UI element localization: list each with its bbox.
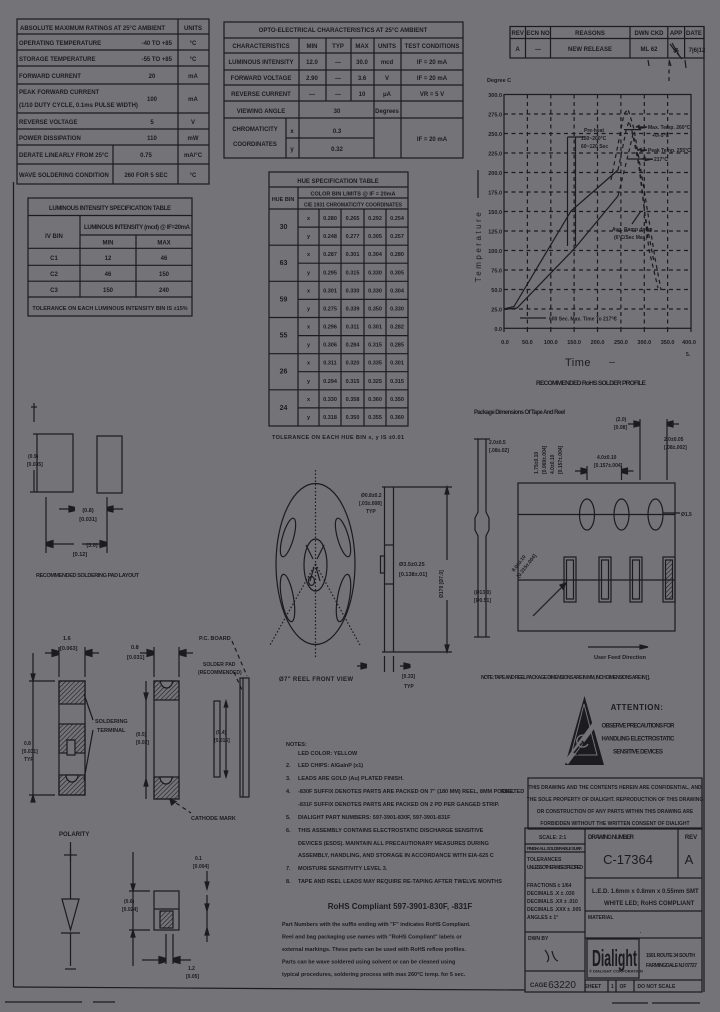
svg-text:-830F SUFFIX DENOTES PARTS ARE: -830F SUFFIX DENOTES PARTS ARE PACKED ON… (298, 789, 524, 795)
svg-text:300.0: 300.0 (488, 93, 502, 99)
svg-text:TEST CONDITIONS: TEST CONDITIONS (405, 44, 460, 50)
svg-text:DWN CKD: DWN CKD (635, 31, 665, 37)
svg-text:0.330: 0.330 (368, 270, 382, 276)
svg-text:63220: 63220 (548, 980, 576, 991)
svg-text:[0.12]: [0.12] (73, 552, 88, 558)
svg-text:C1: C1 (50, 256, 58, 262)
svg-text:LUMINOUS INTENSITY (mcd) @ IF=: LUMINOUS INTENSITY (mcd) @ IF=20mA (84, 225, 191, 231)
svg-text:0.287: 0.287 (323, 252, 337, 258)
svg-text:TOLERANCES: TOLERANCES (527, 857, 562, 863)
svg-text:[0.031]: [0.031] (79, 517, 97, 523)
svg-text:0.8: 0.8 (24, 741, 31, 747)
svg-text:7.: 7. (286, 866, 291, 872)
svg-text:3.6: 3.6 (358, 76, 367, 82)
svg-text:250.0: 250.0 (614, 340, 628, 346)
svg-text:POWER DISSIPATION: POWER DISSIPATION (19, 136, 81, 142)
svg-text:(0.5): (0.5) (136, 732, 147, 738)
svg-text:Degree C: Degree C (487, 78, 511, 84)
svg-text:0.248: 0.248 (323, 234, 337, 240)
svg-text:VIEWING ANGLE: VIEWING ANGLE (237, 109, 285, 115)
svg-text:CAGE: CAGE (530, 983, 547, 989)
svg-text:DRAWING NUMBER: DRAWING NUMBER (588, 835, 635, 841)
svg-text:RECOMMENDED SOLDERING PAD LAYO: RECOMMENDED SOLDERING PAD LAYOUT (36, 573, 140, 579)
svg-text:SOLDER PAD: SOLDER PAD (203, 662, 236, 668)
svg-text:10: 10 (359, 92, 366, 98)
svg-text:275.0: 275.0 (488, 113, 502, 119)
svg-text:POLARITY: POLARITY (59, 832, 89, 838)
svg-text:0.284: 0.284 (346, 343, 361, 349)
svg-text:0.280: 0.280 (390, 252, 404, 258)
svg-text:Reel and bag packaging use nam: Reel and bag packaging use names with "R… (282, 935, 463, 941)
svg-text:A: A (685, 852, 694, 867)
svg-text:°C: °C (190, 173, 197, 179)
svg-text:ANGLES ± 1°: ANGLES ± 1° (527, 915, 558, 921)
svg-text:mW: mW (188, 136, 199, 142)
svg-text:ATTENTION:: ATTENTION: (611, 703, 664, 712)
svg-text:(0.8): (0.8) (82, 508, 93, 514)
svg-text:63: 63 (280, 260, 288, 267)
svg-text:Part Numbers with the suffix e: Part Numbers with the suffix ending with… (282, 922, 471, 928)
svg-text:0.257: 0.257 (390, 234, 404, 240)
svg-text:260 FOR 5 SEC: 260 FOR 5 SEC (124, 173, 168, 179)
svg-text:[Ø0.51]: [Ø0.51] (474, 598, 491, 604)
svg-text:SOLDERING: SOLDERING (95, 719, 128, 725)
svg-text:[0.035]: [0.035] (27, 462, 43, 468)
svg-text:0.318: 0.318 (323, 415, 337, 421)
svg-text:ABSOLUTE MAXIMUM RATINGS AT 25: ABSOLUTE MAXIMUM RATINGS AT 25°C AMBIENT (20, 26, 165, 32)
svg-text:[0.02]: [0.02] (136, 740, 149, 746)
svg-text:UNITS: UNITS (184, 26, 202, 32)
svg-text:0.1: 0.1 (195, 856, 202, 862)
svg-text:2.0±0.5: 2.0±0.5 (489, 440, 506, 446)
svg-text:600 Sec. Max. Time To 217°C: 600 Sec. Max. Time To 217°C (549, 317, 617, 323)
svg-text:(0.4): (0.4) (216, 730, 227, 736)
svg-text:—: — (335, 76, 341, 82)
svg-text:COORDINATES: COORDINATES (233, 142, 277, 148)
svg-text:300.0: 300.0 (637, 340, 651, 346)
svg-text:IF = 20 mA: IF = 20 mA (417, 76, 448, 82)
svg-text:Temperature: Temperature (474, 210, 483, 282)
svg-text:MIN: MIN (307, 44, 318, 50)
svg-text:® DIALIGHT CORPORATION: ® DIALIGHT CORPORATION (589, 969, 643, 974)
svg-text:0.330: 0.330 (368, 288, 382, 294)
svg-text:MATERIAL: MATERIAL (588, 915, 613, 921)
svg-text:—: — (535, 47, 541, 53)
svg-text:0.325: 0.325 (368, 379, 382, 385)
svg-text:DEVICES (ESDS). MAINTAIN ALL P: DEVICES (ESDS). MAINTAIN ALL PRECAUTIONA… (298, 841, 489, 847)
svg-text:150~200°C: 150~200°C (581, 136, 607, 142)
svg-text:DO NOT SCALE: DO NOT SCALE (638, 984, 676, 990)
svg-text:-831F SUFFIX DENOTES PARTS ARE: -831F SUFFIX DENOTES PARTS ARE PACKED ON… (298, 802, 500, 808)
svg-text:0.292: 0.292 (368, 216, 382, 222)
svg-text:—: — (335, 92, 341, 98)
svg-text:5.: 5. (286, 815, 291, 821)
svg-text:REVERSE CURRENT: REVERSE CURRENT (231, 92, 291, 98)
svg-text:0.301: 0.301 (346, 252, 360, 258)
svg-text:UNLESS OTHERWISE SPECIFIED: UNLESS OTHERWISE SPECIFIED (527, 865, 583, 871)
svg-text:4.0±0.10: 4.0±0.10 (597, 455, 617, 461)
svg-text:0.75: 0.75 (140, 153, 152, 159)
svg-text:°C: °C (190, 57, 197, 63)
svg-text:200.0: 200.0 (591, 340, 605, 346)
svg-text:[0.33]: [0.33] (402, 674, 415, 680)
svg-text:46: 46 (105, 272, 112, 278)
svg-text:mA: mA (188, 97, 198, 103)
svg-text:CHROMATICITY: CHROMATICITY (232, 127, 278, 133)
svg-text:Ø7" REEL FRONT VIEW: Ø7" REEL FRONT VIEW (279, 677, 353, 683)
svg-text:STORAGE TEMPERATURE: STORAGE TEMPERATURE (19, 57, 95, 63)
svg-text:(0.9): (0.9) (28, 454, 39, 460)
svg-text:Time: Time (565, 357, 591, 369)
svg-text:IF = 20 mA: IF = 20 mA (417, 137, 448, 143)
svg-text:350.0: 350.0 (661, 340, 675, 346)
svg-text:0.275: 0.275 (323, 307, 337, 313)
svg-text:20: 20 (149, 74, 156, 80)
svg-text:[0.031]: [0.031] (22, 749, 38, 755)
svg-text:(6°C/Sec Max): (6°C/Sec Max) (614, 235, 647, 241)
svg-text:46: 46 (161, 256, 168, 262)
svg-text:—: — (309, 92, 315, 98)
svg-text:TYP: TYP (404, 684, 414, 690)
svg-text:CATHODE MARK: CATHODE MARK (191, 816, 236, 822)
svg-text:V: V (385, 76, 389, 82)
svg-text:DWN BY: DWN BY (528, 936, 549, 942)
svg-text:0.8: 0.8 (131, 645, 139, 651)
svg-text:[0.08]: [0.08] (614, 425, 627, 431)
svg-text:0.304: 0.304 (390, 288, 405, 294)
svg-text:0.282: 0.282 (390, 325, 404, 331)
svg-text:SCALE: 2:1: SCALE: 2:1 (539, 835, 566, 841)
svg-text:8.: 8. (286, 879, 291, 885)
svg-text:59: 59 (280, 296, 288, 303)
svg-text:5.: 5. (686, 352, 691, 358)
svg-text:60~120 Sec: 60~120 Sec (581, 144, 608, 150)
svg-text:FARMINGDALE NJ 07727: FARMINGDALE NJ 07727 (646, 963, 697, 969)
svg-text:LUMINOUS INTENSITY: LUMINOUS INTENSITY (228, 60, 293, 66)
svg-text:0.3: 0.3 (333, 129, 342, 135)
svg-text:2.: 2. (286, 763, 291, 769)
svg-text:110: 110 (147, 136, 157, 142)
svg-text:TAPE AND REEL LEADS MAY REQUIR: TAPE AND REEL LEADS MAY REQUIRE RE-TAPIN… (298, 879, 502, 885)
svg-text:0.350: 0.350 (368, 307, 382, 313)
svg-text:•: • (614, 316, 616, 322)
svg-text:Pre-heat: Pre-heat (584, 128, 604, 134)
svg-text:0.285: 0.285 (390, 343, 404, 349)
svg-text:0.330: 0.330 (346, 288, 360, 294)
svg-text:NEW RELEASE: NEW RELEASE (568, 47, 612, 53)
svg-text:REASONS: REASONS (575, 31, 605, 37)
svg-text:12: 12 (105, 256, 112, 262)
svg-text:HANDLING ELECTROSTATIC: HANDLING ELECTROSTATIC (602, 737, 676, 743)
svg-text:WHITE LED; RoHS COMPLIANT: WHITE LED; RoHS COMPLIANT (604, 901, 695, 907)
svg-text:THIS ASSEMBLY CONTAINS ELECTRO: THIS ASSEMBLY CONTAINS ELECTROSTATIC DIS… (298, 828, 484, 834)
svg-text:0.350: 0.350 (390, 397, 404, 403)
svg-text:1.6: 1.6 (63, 636, 71, 642)
svg-text:2.0±0.05: 2.0±0.05 (664, 437, 684, 443)
svg-text:REV: REV (685, 835, 697, 841)
svg-text:WAVE SOLDERING CONDITION: WAVE SOLDERING CONDITION (19, 173, 109, 179)
svg-text:30: 30 (280, 224, 288, 231)
svg-text:SHEET: SHEET (585, 984, 602, 990)
svg-text:REV: REV (512, 31, 524, 37)
svg-text:30.0: 30.0 (356, 60, 368, 66)
svg-text:4.0±0.10: 4.0±0.10 (550, 454, 556, 474)
svg-text:HUE SPECIFICATION TABLE: HUE SPECIFICATION TABLE (297, 179, 378, 185)
svg-text:Dialight: Dialight (592, 945, 637, 971)
svg-text:0.294: 0.294 (323, 379, 338, 385)
svg-text:DERATE LINEARLY FROM 25°C: DERATE LINEARLY FROM 25°C (19, 153, 109, 159)
svg-text:[0.157±.004]: [0.157±.004] (558, 445, 564, 474)
svg-text:NOTE: TAPE AND REEL PACKAGE DI: NOTE: TAPE AND REEL PACKAGE DIMENSIONS A… (481, 675, 651, 681)
svg-text:FORWARD VOLTAGE: FORWARD VOLTAGE (231, 76, 292, 82)
svg-text:0.0: 0.0 (501, 340, 509, 346)
svg-text:L.E.D. 1.6mm x 0.8mm x 0.55mm: L.E.D. 1.6mm x 0.8mm x 0.55mm SMT (592, 889, 699, 895)
svg-text:LED CHIPS: AlGaInP (x1): LED CHIPS: AlGaInP (x1) (298, 763, 363, 769)
svg-text:DECIMALS .XX ± .010: DECIMALS .XX ± .010 (527, 899, 578, 905)
svg-text:0.254: 0.254 (390, 216, 405, 222)
svg-text:V: V (191, 120, 195, 126)
svg-text:OR CONSTRUCTION OF ANY PARTS W: OR CONSTRUCTION OF ANY PARTS WITHIN THIS… (537, 809, 694, 815)
svg-text:ECN NO: ECN NO (526, 31, 550, 37)
svg-text:Ø1.5: Ø1.5 (681, 512, 692, 518)
svg-text:—: — (335, 60, 341, 66)
svg-text:24: 24 (280, 405, 288, 412)
svg-text:+0/-5°C: +0/-5°C (652, 133, 670, 139)
svg-text:[0.024]: [0.024] (122, 907, 138, 913)
svg-text:75.0: 75.0 (491, 269, 502, 275)
svg-text:RoHS Compliant 597-3901-830F,: RoHS Compliant 597-3901-830F, -831F (328, 902, 473, 911)
svg-text:150: 150 (103, 288, 114, 294)
svg-text:[0.05]: [0.05] (186, 974, 199, 980)
svg-text:Avg. Ramp down: Avg. Ramp down (612, 227, 652, 233)
svg-text:26: 26 (280, 369, 288, 376)
svg-text:225.0: 225.0 (488, 152, 502, 158)
svg-text:CIE 1931 CHROMATICITY COORDINA: CIE 1931 CHROMATICITY COORDINATES (304, 203, 403, 209)
svg-text:LUMINOUS INTENSITY SPECIFICATI: LUMINOUS INTENSITY SPECIFICATION TABLE (49, 206, 171, 212)
svg-text:200.0: 200.0 (488, 171, 502, 177)
svg-text:1.2: 1.2 (188, 966, 195, 972)
svg-text:Degrees: Degrees (375, 109, 399, 115)
svg-text:mA/°C: mA/°C (184, 153, 203, 159)
svg-text:3.: 3. (286, 776, 291, 782)
svg-text:C2: C2 (50, 272, 58, 278)
svg-text:OBSERVE PRECAUTIONS FOR: OBSERVE PRECAUTIONS FOR (602, 724, 676, 730)
svg-text:MAX: MAX (355, 44, 368, 50)
svg-text:0.0: 0.0 (494, 327, 502, 333)
svg-text:6.: 6. (286, 828, 291, 834)
svg-text:[0.069±.004]: [0.069±.004] (542, 445, 548, 474)
svg-text:ASSEMBLY, HANDLING, AND STORAG: ASSEMBLY, HANDLING, AND STORAGE IN ACCOR… (298, 853, 494, 859)
svg-text:[0.004]: [0.004] (193, 864, 209, 870)
svg-text:150.0: 150.0 (567, 340, 581, 346)
svg-text:[0.138±.01]: [0.138±.01] (399, 572, 427, 578)
svg-text:RECOMMENDED RoHS SOLDER PROFIL: RECOMMENDED RoHS SOLDER PROFILE (536, 380, 647, 387)
svg-text:DECIMALS .X ± .030: DECIMALS .X ± .030 (527, 891, 575, 897)
svg-text:Ø0.8±0.2: Ø0.8±0.2 (361, 493, 382, 499)
svg-text:DIALIGHT PART NUMBERS: 597-390: DIALIGHT PART NUMBERS: 597-3901-830F, 59… (298, 815, 451, 821)
svg-text:0.360: 0.360 (390, 415, 404, 421)
svg-text:0.305: 0.305 (368, 234, 382, 240)
svg-text:CHARACTERISTICS: CHARACTERISTICS (232, 44, 289, 50)
svg-text:TOLERANCE ON EACH HUE BIN x, y: TOLERANCE ON EACH HUE BIN x, y IS ±0.01 (272, 435, 404, 441)
svg-text:FORWARD CURRENT: FORWARD CURRENT (19, 74, 81, 80)
svg-text:1501 ROUTE 34 SOUTH: 1501 ROUTE 34 SOUTH (646, 953, 695, 959)
svg-text:SENSITIVE DEVICES: SENSITIVE DEVICES (613, 750, 663, 756)
svg-text:Package Dimensions Of Tape And: Package Dimensions Of Tape And Reel (474, 410, 565, 416)
svg-text:DATE: DATE (686, 31, 702, 37)
svg-text:[0.031]: [0.031] (127, 655, 145, 661)
svg-text:UNITS: UNITS (378, 44, 396, 50)
svg-text:(Ø13.0): (Ø13.0) (474, 590, 491, 596)
svg-text:MAX: MAX (157, 241, 170, 247)
svg-text:0.301: 0.301 (368, 325, 382, 331)
svg-text:TERMINAL: TERMINAL (97, 728, 126, 734)
svg-text:MIN: MIN (103, 241, 114, 247)
svg-text:(2.0): (2.0) (616, 417, 627, 423)
svg-text:0.350: 0.350 (346, 415, 360, 421)
svg-text:IV BIN: IV BIN (45, 234, 63, 240)
svg-text:Peak Temp. 255°C: Peak Temp. 255°C (648, 148, 691, 154)
svg-text:Parts can be wave soldered usi: Parts can be wave soldered using solvent… (282, 960, 455, 966)
svg-text:0.301: 0.301 (323, 288, 337, 294)
svg-text:mcd: mcd (381, 60, 394, 66)
svg-text:LED COLOR: YELLOW: LED COLOR: YELLOW (298, 751, 358, 757)
svg-text:0.277: 0.277 (346, 234, 360, 240)
svg-text:LEADS ARE GOLD (Au) PLATED FIN: LEADS ARE GOLD (Au) PLATED FINISH. (298, 776, 404, 782)
svg-text:COLOR BIN LIMITS @ IF = 20mA: COLOR BIN LIMITS @ IF = 20mA (311, 192, 396, 198)
svg-text:[.08±.02]: [.08±.02] (489, 448, 509, 454)
svg-text:[.08±.002]: [.08±.002] (664, 445, 687, 451)
svg-text:50.0: 50.0 (522, 340, 533, 346)
svg-text:8.4: 8.4 (404, 664, 411, 670)
svg-text:(0.6): (0.6) (124, 899, 135, 905)
svg-text:(3.0): (3.0) (86, 543, 97, 549)
svg-text:50.0: 50.0 (491, 288, 502, 294)
svg-text:FINISH: ALL SOLDERABLE SURF.: FINISH: ALL SOLDERABLE SURF. (527, 846, 582, 851)
svg-text:0.280: 0.280 (323, 216, 337, 222)
svg-text:0.295: 0.295 (323, 270, 337, 276)
svg-text:0.330: 0.330 (390, 307, 404, 313)
svg-text:[0.157±.004]: [0.157±.004] (594, 463, 623, 469)
svg-text:User Feed Direction: User Feed Direction (594, 655, 647, 661)
svg-text:0.315: 0.315 (346, 270, 360, 276)
svg-text:30: 30 (334, 109, 341, 115)
svg-text:175.0: 175.0 (488, 191, 502, 197)
svg-text:APP: APP (670, 31, 682, 37)
svg-text:0.311: 0.311 (323, 361, 336, 367)
svg-text:0.355: 0.355 (368, 415, 382, 421)
svg-text:REVERSE VOLTAGE: REVERSE VOLTAGE (19, 120, 77, 126)
svg-text:VR = 5 V: VR = 5 V (420, 92, 444, 98)
svg-text:400.0: 400.0 (682, 340, 696, 346)
svg-text:0.265: 0.265 (346, 216, 360, 222)
svg-text:[.03±.008]: [.03±.008] (359, 501, 382, 507)
svg-text:-55 TO +85: -55 TO +85 (142, 57, 173, 63)
svg-text:[0.016]: [0.016] (214, 738, 230, 744)
svg-text:MOISTURE SENSITIVITY LEVEL 3.: MOISTURE SENSITIVITY LEVEL 3. (298, 866, 388, 872)
svg-text:-40 TO +85: -40 TO +85 (142, 41, 173, 47)
svg-text:0.358: 0.358 (346, 397, 360, 403)
svg-text:1.75±0.10: 1.75±0.10 (534, 452, 540, 474)
svg-text:DECIMALS .XXX ± .005: DECIMALS .XXX ± .005 (527, 907, 581, 913)
svg-text:240: 240 (159, 288, 170, 294)
svg-text:THE SOLE PROPERTY OF DIALIGHT.: THE SOLE PROPERTY OF DIALIGHT. REPRODUCT… (527, 797, 704, 803)
svg-text:C-17364: C-17364 (603, 852, 653, 867)
svg-text:PEAK FORWARD CURRENT: PEAK FORWARD CURRENT (19, 90, 100, 96)
svg-text:0.315: 0.315 (390, 379, 404, 385)
svg-text:0.330: 0.330 (323, 397, 337, 403)
svg-text:0.335: 0.335 (368, 361, 382, 367)
svg-text:0.305: 0.305 (390, 270, 404, 276)
svg-text:[0.063]: [0.063] (60, 646, 78, 652)
svg-text:0.311: 0.311 (346, 325, 359, 331)
svg-text:0.32: 0.32 (331, 147, 343, 153)
svg-text:OF: OF (620, 984, 627, 990)
svg-text:OPTO-ELECTRICAL CHARACTERISTIC: OPTO-ELECTRICAL CHARACTERISTICS AT 25°C … (259, 28, 428, 34)
svg-text:250.0: 250.0 (488, 132, 502, 138)
svg-text:FRACTIONS ± 1/64: FRACTIONS ± 1/64 (527, 883, 572, 889)
svg-text:TYP: TYP (366, 509, 376, 515)
svg-text:Ø3.5±0.25: Ø3.5±0.25 (399, 562, 425, 568)
svg-text:100.0: 100.0 (488, 249, 502, 255)
svg-text:0.320: 0.320 (346, 361, 360, 367)
svg-text:100: 100 (147, 97, 158, 103)
svg-text:A: A (516, 47, 521, 53)
svg-text:150: 150 (159, 272, 170, 278)
svg-text:(1/10 DUTY CYCLE, 0.1ms PULSE: (1/10 DUTY CYCLE, 0.1ms PULSE WIDTH) (19, 103, 138, 109)
svg-text:C3: C3 (50, 288, 58, 294)
svg-text:OPERATING TEMPERATURE: OPERATING TEMPERATURE (19, 41, 101, 47)
svg-text:mA: mA (188, 74, 198, 80)
svg-text:THIS DRAWING AND THE CONTENTS: THIS DRAWING AND THE CONTENTS HEREIN ARE… (528, 785, 702, 791)
svg-text:—: — (609, 360, 615, 366)
svg-text:0.360: 0.360 (368, 397, 382, 403)
svg-text:external markings. These parts: external markings. These parts can be us… (282, 947, 466, 953)
svg-text:FORBIDDEN WITHOUT THE WRITTEN: FORBIDDEN WITHOUT THE WRITTEN CONSENT OF… (540, 821, 689, 827)
svg-text:NOTES:: NOTES: (286, 742, 307, 748)
svg-text:°C: °C (190, 41, 197, 47)
svg-text:1: 1 (611, 984, 614, 990)
svg-text:0.315: 0.315 (368, 343, 382, 349)
svg-text:μA: μA (383, 92, 392, 98)
svg-text:2.90: 2.90 (306, 76, 318, 82)
svg-text:P.C. BOARD: P.C. BOARD (199, 636, 231, 642)
svg-text:Ø178 [Ø7.0]: Ø178 [Ø7.0] (439, 570, 445, 598)
svg-text:55: 55 (280, 333, 288, 340)
svg-text:0.304: 0.304 (368, 252, 383, 258)
svg-text:150.0: 150.0 (488, 210, 502, 216)
svg-text:12.0: 12.0 (306, 60, 318, 66)
svg-text:ML 62: ML 62 (641, 47, 659, 53)
svg-text:100.0: 100.0 (544, 340, 558, 346)
svg-text:IF = 20 mA: IF = 20 mA (417, 60, 448, 66)
svg-text:TYP: TYP (24, 757, 34, 763)
svg-text:0.306: 0.306 (323, 343, 337, 349)
svg-text:typical procedures, soldering: typical procedures, soldering process wi… (282, 972, 466, 978)
svg-text:0.296: 0.296 (323, 325, 337, 331)
svg-text:217°C: 217°C (654, 157, 668, 163)
svg-text:TYP: TYP (332, 44, 344, 50)
svg-text:0.339: 0.339 (346, 307, 360, 313)
svg-text:HUE BIN: HUE BIN (272, 197, 295, 203)
svg-text:25.0: 25.0 (491, 308, 502, 314)
svg-text:TOLERANCE ON EACH LUMINOUS INT: TOLERANCE ON EACH LUMINOUS INTENSITY BIN… (32, 306, 187, 312)
svg-text:0.315: 0.315 (346, 379, 360, 385)
svg-text:125.0: 125.0 (488, 230, 502, 236)
svg-text:4.: 4. (286, 789, 291, 795)
svg-text:Max. Temp. 260°C: Max. Temp. 260°C (648, 125, 691, 131)
svg-text:0.301: 0.301 (390, 361, 404, 367)
